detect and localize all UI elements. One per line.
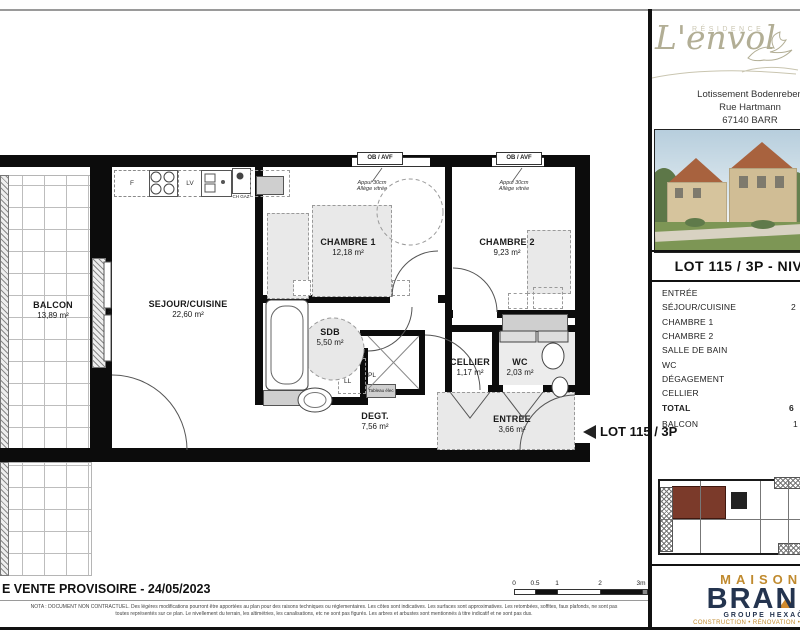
left-arrow-icon	[583, 425, 596, 439]
room-name-sejour: SEJOUR/CUISINE	[149, 299, 228, 309]
roof-right	[729, 142, 795, 170]
window-5	[775, 176, 784, 188]
window-1	[675, 188, 683, 198]
table-row-label: ENTRÉE	[662, 288, 698, 298]
table-row-value-total: 6	[789, 403, 794, 413]
brand-rule	[652, 564, 800, 566]
table-row-label: CHAMBRE 1	[662, 317, 713, 327]
scale-tick: 0	[512, 580, 516, 587]
sink-bowl-2	[205, 184, 215, 192]
room-area-chambre1: 12,18 m²	[332, 248, 364, 257]
scale-segment-black	[535, 589, 558, 595]
underline-curve	[652, 71, 796, 78]
scale-tick: 0.5	[530, 580, 539, 587]
closet-label: PL	[368, 372, 376, 379]
hob-burner-4	[164, 184, 174, 194]
sdb-basin	[298, 388, 332, 412]
table-row-label: SALLE DE BAIN	[662, 345, 727, 355]
room-area-cellier: 1,17 m²	[456, 368, 483, 377]
wc-shelf	[500, 331, 536, 342]
scale-tick: 3m	[636, 580, 645, 587]
brand-group: GROUPE HEXAÔM	[668, 612, 800, 619]
address-line1: Lotissement Bodenreben	[650, 88, 800, 101]
scale-segment-white	[557, 589, 601, 595]
note-pointer-1	[372, 168, 382, 182]
title-rule-bottom	[652, 280, 800, 282]
bush-2	[751, 220, 775, 229]
clearance-circle-chambre1	[377, 179, 443, 245]
legal-line1: NOTA : DOCUMENT NON CONTRACTUEL. Des lég…	[0, 604, 648, 611]
door-swing-chambre1	[392, 251, 438, 297]
hob-burner-3	[151, 184, 161, 194]
plan-sheet: { "header": { "residence_label": "RÉSIDE…	[0, 0, 800, 640]
sink-bowl-1	[205, 174, 215, 182]
roof-left	[667, 158, 725, 184]
table-row-label: DÉGAGEMENT	[662, 374, 724, 384]
document-title: E VENTE PROVISOIRE - 24/05/2023	[2, 582, 210, 596]
toilet-bowl	[542, 343, 564, 369]
room-name-cellier: CELLIER	[450, 357, 490, 367]
logo-underline	[650, 62, 800, 84]
hob-burner-2	[164, 172, 174, 182]
door-swing-sdb	[368, 307, 412, 351]
scale-segment-end	[642, 589, 648, 595]
window-3	[739, 176, 748, 188]
footer-rule	[0, 600, 648, 601]
bathtub-inner	[271, 306, 303, 384]
room-area-chambre2: 9,23 m²	[493, 248, 520, 257]
room-name-entree: ENTREE	[493, 414, 531, 424]
window-2	[693, 188, 701, 198]
washer-label: LL	[344, 378, 351, 385]
porte-fenetre-leaf-1	[104, 262, 111, 308]
table-row-label: CHAMBRE 2	[662, 331, 713, 341]
key-plan-highlighted-unit	[672, 486, 726, 519]
room-name-sdb: SDB	[320, 327, 340, 337]
bush-1	[685, 218, 705, 227]
scale-segment-white	[514, 589, 536, 595]
bird-shape	[748, 32, 792, 61]
table-row-label: WC	[662, 360, 677, 370]
key-plan-wall-h	[660, 519, 800, 520]
boiler-dot	[237, 173, 244, 180]
porte-fenetre-leaf-2	[104, 315, 111, 361]
room-area-sejour: 22,60 m²	[172, 310, 204, 319]
legal-notice: NOTA : DOCUMENT NON CONTRACTUEL. Des lég…	[0, 604, 648, 618]
note-pointer-2	[512, 168, 522, 182]
room-area-sdb: 5,50 m²	[316, 338, 343, 347]
sink-tap	[221, 180, 225, 184]
key-plan-wall-v2	[760, 481, 761, 553]
placard-cross	[368, 336, 419, 389]
scale-tick: 2	[598, 580, 602, 587]
room-name-wc: WC	[512, 357, 527, 367]
table-row-label: SÉJOUR/CUISINE	[662, 302, 736, 312]
building-render-photo	[654, 129, 800, 253]
table-row-value: 1	[793, 419, 798, 429]
room-area-entree: 3,66 m²	[498, 425, 525, 434]
address-block: Lotissement Bodenreben Rue Hartmann 6714…	[650, 88, 800, 127]
room-name-chambre1: CHAMBRE 1	[320, 237, 375, 247]
door-swing-porte-fenetre	[112, 375, 187, 450]
room-name-degt: DEGT.	[361, 411, 389, 421]
address-line2: Rue Hartmann	[650, 101, 800, 114]
table-row-value: 2	[791, 302, 796, 312]
key-plan-wall-v1	[700, 481, 701, 553]
hob-burner-1	[151, 172, 161, 182]
key-plan-balcony-topright	[774, 477, 800, 489]
address-line3: 67140 BARR	[650, 114, 800, 127]
room-name-chambre2: CHAMBRE 2	[479, 237, 534, 247]
toilet-tank	[538, 331, 568, 342]
scale-tick: 1	[555, 580, 559, 587]
key-plan-wall-v3	[788, 481, 789, 553]
room-area-wc: 2,03 m²	[506, 368, 533, 377]
table-row-label: CELLIER	[662, 388, 699, 398]
door-swing-chambre2	[453, 268, 497, 312]
table-row-label-total: TOTAL	[662, 403, 691, 413]
door-leaf-cellier	[450, 392, 490, 418]
legal-line2: toutes représentés sur ce plan. Le nivel…	[0, 611, 648, 618]
lot-title: LOT 115 / 3P - NIVEAU	[648, 252, 800, 280]
key-plan	[658, 479, 800, 555]
key-plan-balcony-bottomright	[778, 543, 800, 555]
brand-tagline: CONSTRUCTION • RÉNOVATION • PROMOTION	[660, 620, 800, 626]
scale-segment-black	[600, 589, 643, 595]
wc-hand-basin	[552, 377, 568, 397]
room-area-degt: 7,56 m²	[361, 422, 388, 431]
key-plan-stair-core	[731, 492, 747, 509]
table-row-label: BALCON	[662, 419, 698, 429]
window-4	[757, 176, 766, 188]
